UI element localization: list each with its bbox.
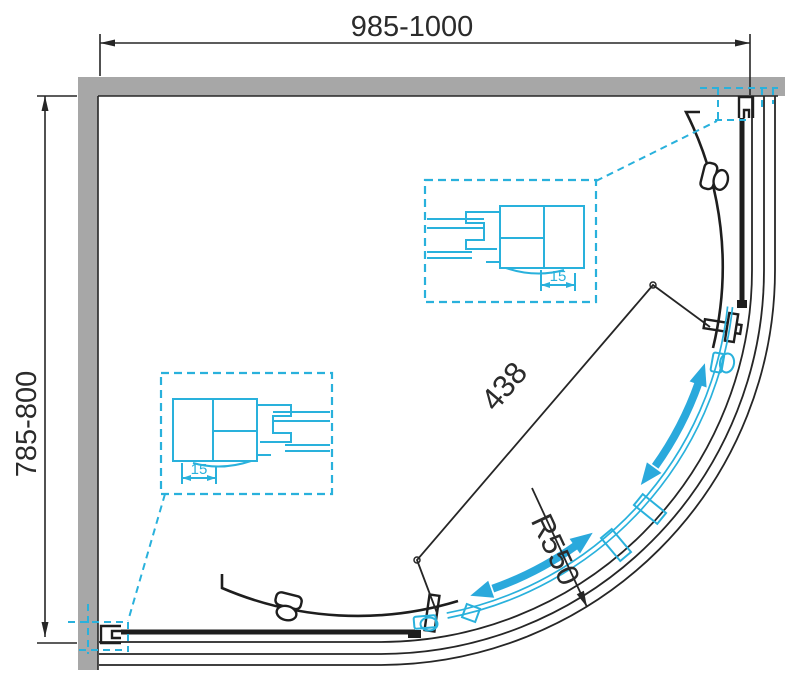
plan-canvas: 985-1000 785-800 — [0, 0, 800, 687]
left-wall — [78, 77, 98, 670]
wall-profile-bracket-bottom — [101, 626, 121, 643]
detail-leaders — [68, 88, 778, 654]
arrowhead-icon — [690, 363, 707, 387]
walls — [78, 77, 785, 670]
arrow-up-icon — [42, 96, 49, 111]
curved-rails — [99, 96, 775, 665]
arrow-left-icon — [182, 475, 191, 481]
detail-box-border — [161, 373, 332, 494]
leader-top-detail — [596, 121, 717, 181]
profile-adjust-label-top: 15 — [550, 268, 567, 285]
rail-outer — [99, 96, 775, 665]
rail-inner — [99, 96, 752, 642]
shower-enclosure-plan-drawing: 985-1000 785-800 — [0, 0, 800, 687]
profile-adjust-label-bottom: 15 — [191, 461, 208, 478]
door-panel-curve — [222, 574, 458, 616]
dimension-depth-label: 785-800 — [11, 371, 43, 477]
detail-box-top: 15 — [425, 180, 596, 302]
door-rollers — [414, 352, 736, 630]
dimension-left: 785-800 — [11, 96, 77, 643]
arrow-down-icon — [42, 622, 49, 637]
arrow-right-icon — [735, 40, 750, 47]
detail-box-bottom: 15 — [161, 373, 332, 494]
wall-profile-bracket-top — [739, 97, 753, 118]
top-wall — [78, 77, 785, 96]
wall-inner-edge-line — [98, 96, 778, 670]
sliding-door-arc — [447, 307, 733, 619]
wall-channel-profile — [466, 212, 497, 249]
profile-inner-lines — [213, 399, 271, 461]
door-glass-line-1 — [447, 307, 728, 614]
roller-wheel-top — [718, 352, 735, 373]
glass-lines — [427, 219, 484, 258]
open-door-top — [686, 112, 731, 348]
panel-end-foot — [408, 630, 421, 638]
arrowhead-icon — [470, 581, 494, 598]
glass-lines — [273, 412, 330, 451]
wall-channel-profile — [260, 405, 291, 442]
arrow-right-icon — [207, 475, 216, 481]
door-chord-label: 438 — [474, 355, 534, 417]
arrow-right-icon — [566, 282, 575, 288]
door-magnet-profile-2 — [601, 529, 631, 561]
panel-end-foot — [737, 300, 747, 308]
arrow-left-icon — [541, 282, 550, 288]
arrow-left-icon — [100, 40, 115, 47]
dimension-width-label: 985-1000 — [351, 11, 474, 43]
door-glass-line-2 — [448, 307, 733, 618]
profile-inner-lines — [486, 206, 544, 268]
leader-bottom-detail — [128, 494, 165, 621]
